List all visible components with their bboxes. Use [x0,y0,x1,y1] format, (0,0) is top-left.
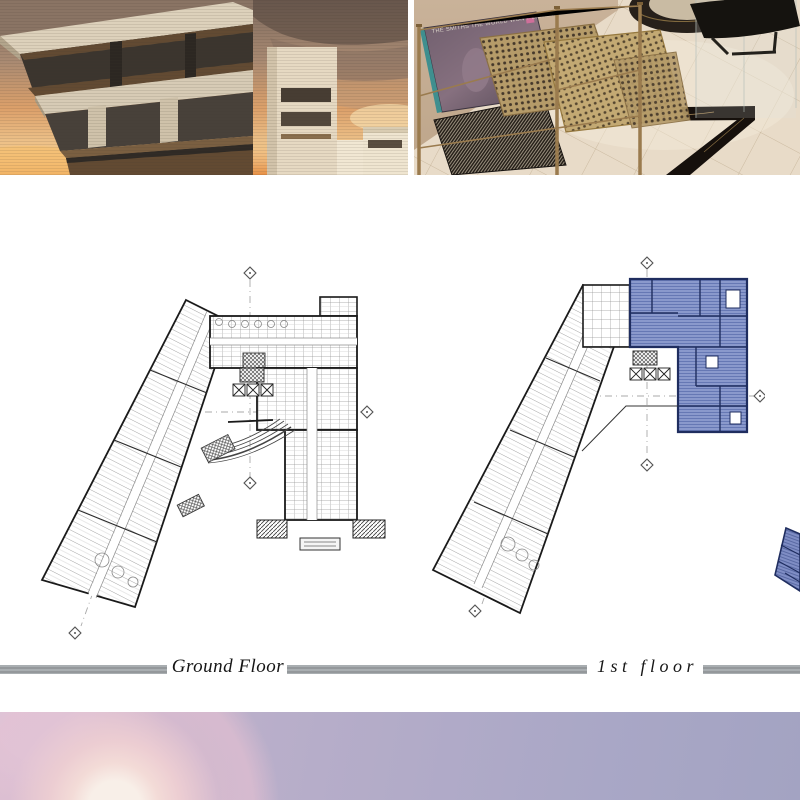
portfolio-page: THE SMITHS THE WORLD WON'T LISTEN [0,0,800,800]
core-elevators [630,351,670,380]
interior-render-image: THE SMITHS THE WORLD WON'T LISTEN [414,0,800,175]
caption-bar-right [703,665,800,674]
first-floor-plan [430,256,765,640]
first-plan-building [433,279,747,613]
exterior-render-canvas [0,0,408,175]
caption-bar-left [0,665,167,674]
hero-images: THE SMITHS THE WORLD WON'T LISTEN [0,0,800,175]
ground-plan-building [42,297,385,607]
scanline-texture [0,0,408,175]
first-floor-label: 1st floor [597,656,697,677]
caption-bar-middle [287,665,587,674]
second-floor-plan-fragment [765,525,800,595]
main-entrance [257,520,385,550]
bottom-text-panel: Design firms must also ba with the comfo… [0,712,800,800]
floor-plans-area [0,200,800,660]
ground-floor-plan [33,248,405,648]
ground-floor-label: Ground Floor [171,656,285,678]
interior-render-canvas: THE SMITHS THE WORLD WON'T LISTEN [414,0,800,175]
terrace-edge [582,406,678,451]
ramp [177,419,295,517]
exterior-render-image [0,0,408,175]
